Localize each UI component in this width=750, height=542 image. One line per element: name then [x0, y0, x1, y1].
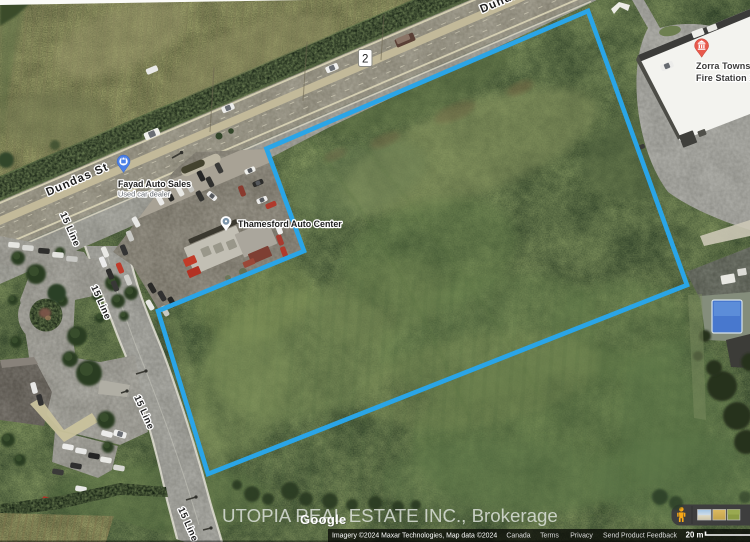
- svg-text:Used car dealer: Used car dealer: [118, 190, 171, 199]
- svg-text:Canada: Canada: [506, 533, 530, 540]
- svg-text:Privacy: Privacy: [570, 533, 593, 540]
- svg-text:Fire Station 1: Fire Station 1: [696, 73, 750, 83]
- svg-text:Fayad Auto Sales: Fayad Auto Sales: [118, 179, 191, 189]
- svg-text:Send Product Feedback: Send Product Feedback: [603, 533, 677, 540]
- svg-text:UTOPIA REAL ESTATE INC., Broke: UTOPIA REAL ESTATE INC., Brokerage: [222, 505, 558, 526]
- svg-text:2: 2: [362, 54, 368, 66]
- svg-text:Thamesford Auto Center: Thamesford Auto Center: [238, 219, 342, 229]
- svg-text:Imagery ©2024 Maxar Technologi: Imagery ©2024 Maxar Technologies, Map da…: [332, 532, 497, 540]
- svg-text:20 m: 20 m: [686, 531, 704, 540]
- svg-text:Google: Google: [300, 512, 347, 527]
- svg-text:Terms: Terms: [540, 533, 559, 540]
- svg-text:Zorra Townshi: Zorra Townshi: [696, 61, 750, 71]
